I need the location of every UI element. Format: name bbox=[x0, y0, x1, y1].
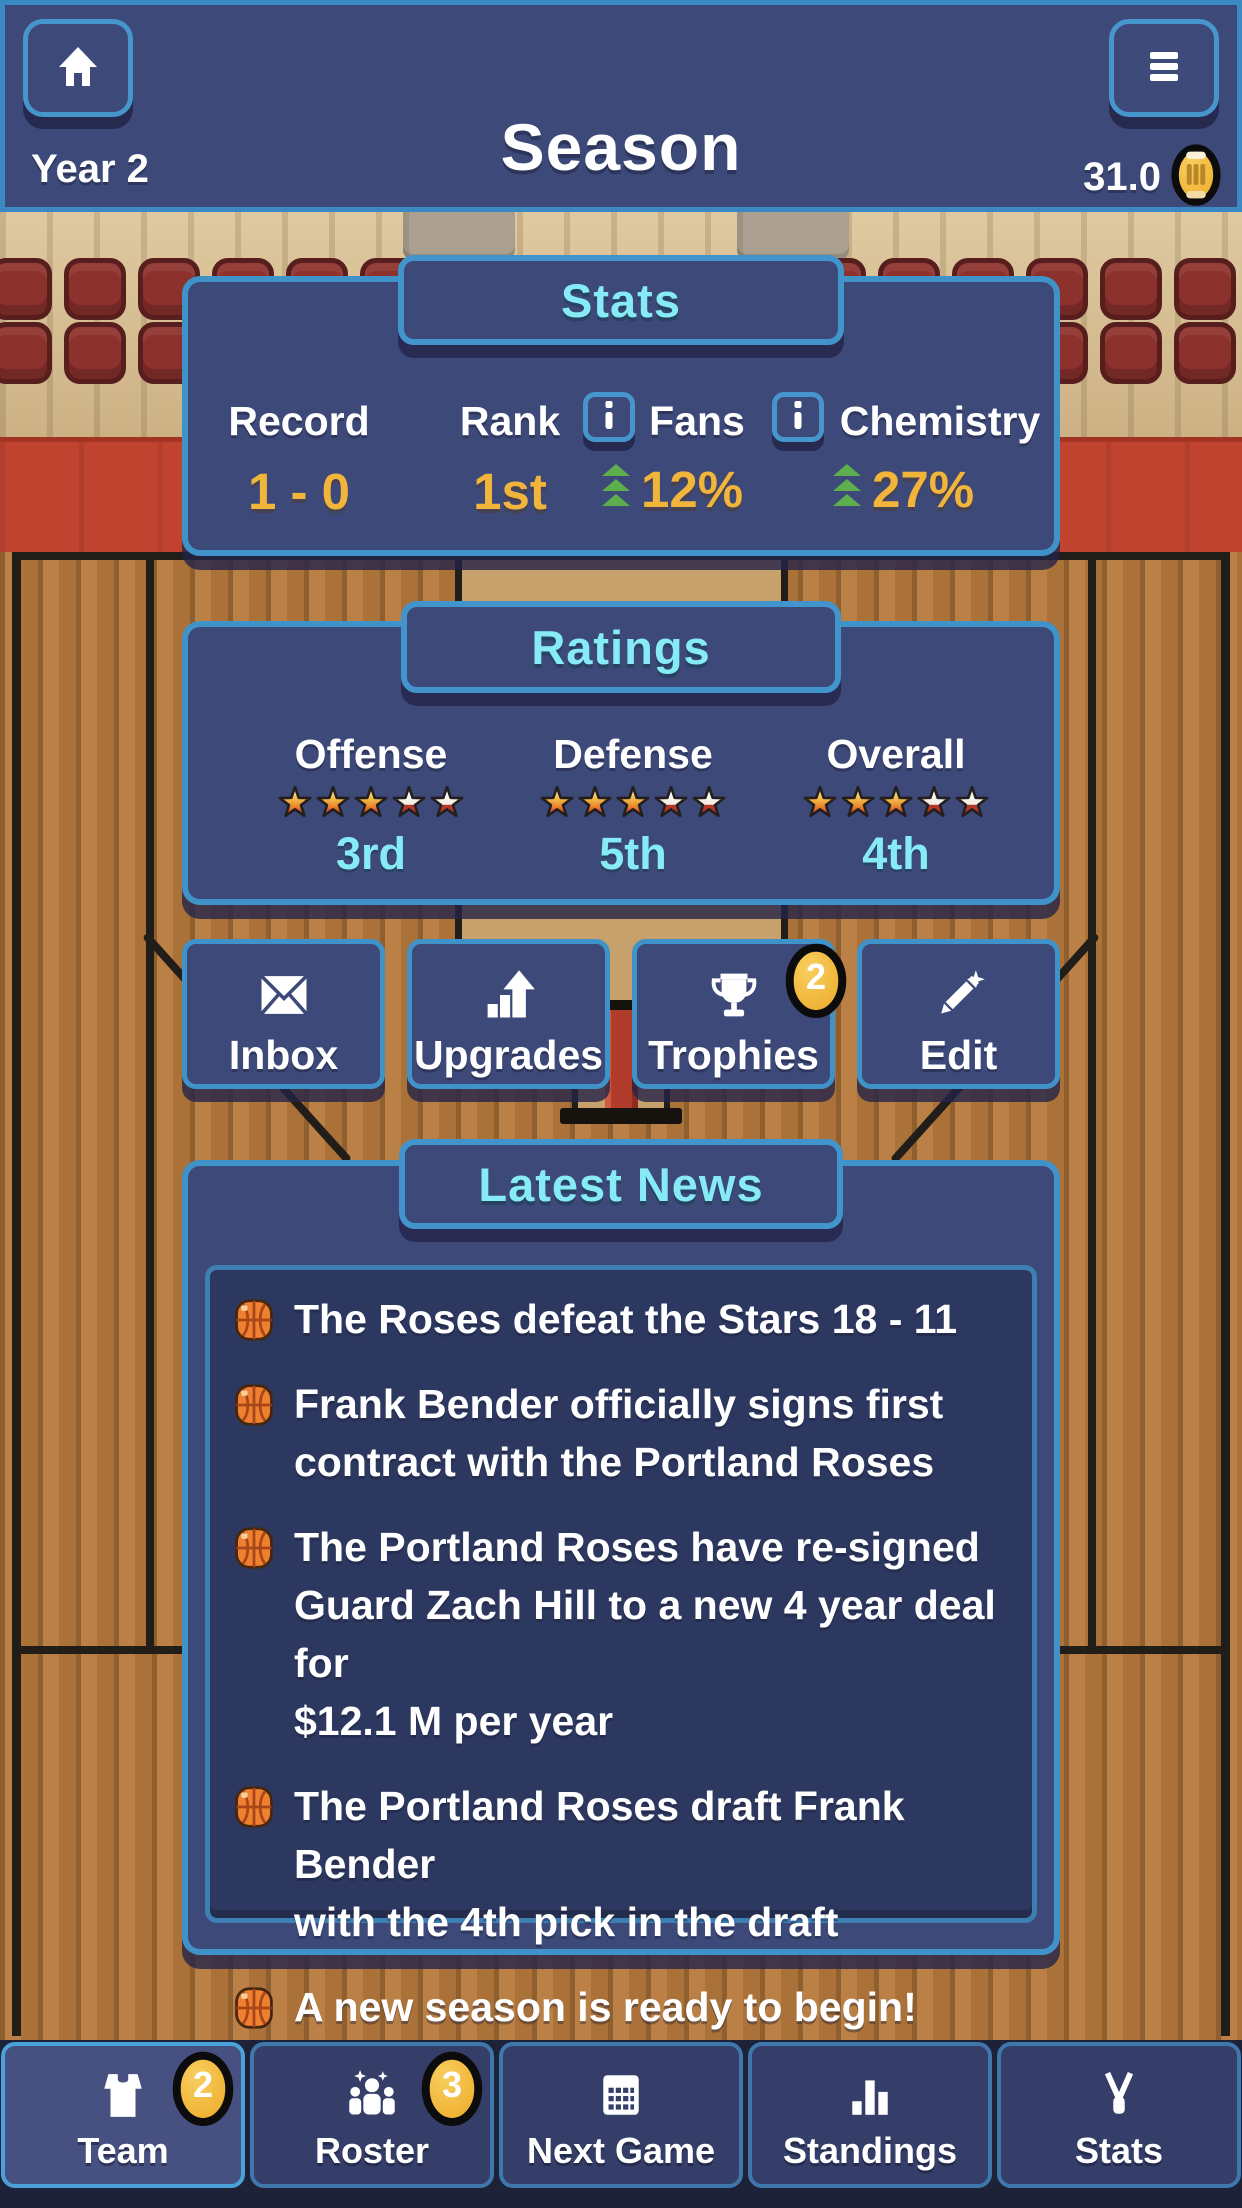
roster-badge: 3 bbox=[420, 2050, 484, 2126]
season-screen: Year 2 Season 31.0 Record Rank bbox=[0, 0, 1242, 2208]
whistle-icon bbox=[1094, 2062, 1144, 2128]
news-panel-header: Latest News bbox=[399, 1139, 843, 1229]
entrance-mat bbox=[403, 205, 515, 260]
nav-label-roster: Roster bbox=[315, 2130, 429, 2172]
seat bbox=[1100, 258, 1162, 320]
team-badge: 2 bbox=[171, 2050, 235, 2126]
trend-up-icon bbox=[601, 464, 631, 515]
menu-icon bbox=[1142, 44, 1186, 93]
nav-label-next-game: Next Game bbox=[527, 2130, 715, 2172]
nav-tab-standings[interactable]: Standings bbox=[748, 2042, 992, 2188]
trophies-badge: 2 bbox=[784, 942, 848, 1018]
rating-label: Overall bbox=[826, 731, 965, 778]
entrance-mat bbox=[737, 205, 849, 260]
news-text: The Portland Roses have re-signed Guard … bbox=[294, 1518, 1002, 1750]
nav-label-standings: Standings bbox=[783, 2130, 957, 2172]
people-icon bbox=[346, 2062, 398, 2128]
news-text: A new season is ready to begin! bbox=[294, 1978, 917, 2036]
basketball-icon bbox=[232, 1986, 276, 2036]
stat-label-fans: Fans bbox=[649, 398, 745, 445]
scoreboard-icon bbox=[596, 2062, 646, 2128]
seat bbox=[0, 258, 52, 320]
news-text: The Portland Roses draft Frank Bender wi… bbox=[294, 1777, 1002, 1951]
rating-rank: 4th bbox=[862, 828, 930, 880]
action-button-row: Inbox Upgrades 2 Trophies Edit bbox=[182, 939, 1060, 1089]
star-rating bbox=[802, 786, 990, 822]
star-rating bbox=[539, 786, 727, 822]
stats-panel-header: Stats bbox=[398, 255, 844, 345]
nav-tab-next-game[interactable]: Next Game bbox=[499, 2042, 743, 2188]
news-item: Frank Bender officially signs first cont… bbox=[232, 1375, 1002, 1491]
basketball-icon bbox=[232, 1785, 276, 1951]
stats-panel-title: Stats bbox=[561, 273, 681, 328]
news-panel: The Roses defeat the Stars 18 - 11 Frank… bbox=[182, 1160, 1060, 1955]
envelope-icon bbox=[255, 964, 313, 1026]
edit-label: Edit bbox=[920, 1032, 997, 1079]
trend-up-icon bbox=[832, 464, 862, 515]
news-item: The Portland Roses draft Frank Bender wi… bbox=[232, 1777, 1002, 1951]
nav-label-stats: Stats bbox=[1075, 2130, 1163, 2172]
upgrades-label: Upgrades bbox=[414, 1032, 603, 1079]
seat bbox=[1174, 258, 1236, 320]
star-rating bbox=[277, 786, 465, 822]
chemistry-value: 27% bbox=[872, 460, 974, 519]
court-sideline bbox=[12, 558, 21, 2036]
top-bar: Year 2 Season 31.0 bbox=[0, 0, 1242, 212]
rating-label: Offense bbox=[295, 731, 448, 778]
trophies-badge-count: 2 bbox=[784, 956, 848, 998]
rank-value: 1st bbox=[473, 462, 547, 521]
trophies-label: Trophies bbox=[648, 1032, 819, 1079]
rank-info-button[interactable] bbox=[583, 392, 635, 442]
court-lane-line bbox=[146, 558, 154, 1652]
seat bbox=[1174, 322, 1236, 384]
info-icon bbox=[596, 400, 622, 435]
news-text: The Roses defeat the Stars 18 - 11 bbox=[294, 1290, 957, 1348]
nav-label-team: Team bbox=[77, 2130, 168, 2172]
bottom-navigation: 2 Team 3 Roster bbox=[0, 2040, 1242, 2208]
fans-value-group: 12% bbox=[601, 460, 743, 519]
seat bbox=[1100, 322, 1162, 384]
home-icon bbox=[55, 43, 101, 94]
stat-label-rank: Rank bbox=[460, 398, 560, 445]
edit-button[interactable]: Edit bbox=[857, 939, 1060, 1089]
upgrades-button[interactable]: Upgrades bbox=[407, 939, 610, 1089]
ratings-panel-header: Ratings bbox=[401, 601, 841, 693]
trophies-button[interactable]: 2 Trophies bbox=[632, 939, 835, 1089]
pencil-icon bbox=[932, 964, 986, 1026]
currency-display: 31.0 bbox=[1083, 143, 1223, 212]
rating-label: Defense bbox=[553, 731, 713, 778]
info-icon bbox=[785, 400, 811, 435]
stat-label-record: Record bbox=[228, 398, 369, 445]
coin-amount: 31.0 bbox=[1083, 155, 1161, 200]
rating-rank: 3rd bbox=[336, 828, 406, 880]
news-list-panel: The Roses defeat the Stars 18 - 11 Frank… bbox=[205, 1265, 1037, 1923]
basketball-icon bbox=[232, 1526, 276, 1750]
roster-badge-count: 3 bbox=[420, 2064, 484, 2106]
news-item: The Roses defeat the Stars 18 - 11 bbox=[232, 1290, 1002, 1348]
record-value: 1 - 0 bbox=[248, 462, 350, 521]
inbox-button[interactable]: Inbox bbox=[182, 939, 385, 1089]
news-item: The Portland Roses have re-signed Guard … bbox=[232, 1518, 1002, 1750]
nav-tab-stats[interactable]: Stats bbox=[997, 2042, 1241, 2188]
inbox-label: Inbox bbox=[229, 1032, 338, 1079]
menu-button[interactable] bbox=[1109, 19, 1219, 117]
chart-up-icon bbox=[481, 964, 537, 1026]
seat bbox=[0, 322, 52, 384]
jersey-icon bbox=[98, 2062, 148, 2128]
court-sideline bbox=[1221, 558, 1230, 2036]
news-item: A new season is ready to begin! bbox=[232, 1978, 1002, 2036]
news-panel-title: Latest News bbox=[478, 1157, 763, 1212]
trophy-icon bbox=[707, 964, 761, 1026]
chemistry-value-group: 27% bbox=[832, 460, 974, 519]
page-title: Season bbox=[5, 109, 1237, 185]
ratings-panel-title: Ratings bbox=[531, 620, 710, 675]
basketball-icon bbox=[232, 1298, 276, 1348]
news-list: The Roses defeat the Stars 18 - 11 Frank… bbox=[232, 1290, 1002, 2036]
nav-tab-roster[interactable]: 3 Roster bbox=[250, 2042, 494, 2188]
fans-value: 12% bbox=[641, 460, 743, 519]
stat-label-chemistry: Chemistry bbox=[840, 398, 1041, 445]
nav-tab-team[interactable]: 2 Team bbox=[1, 2042, 245, 2188]
court-lane-line bbox=[1088, 558, 1096, 1652]
coin-icon bbox=[1169, 143, 1223, 212]
seat bbox=[64, 322, 126, 384]
basketball-icon bbox=[232, 1383, 276, 1491]
team-badge-count: 2 bbox=[171, 2064, 235, 2106]
hoop-base bbox=[560, 1108, 682, 1124]
seat bbox=[64, 258, 126, 320]
home-button[interactable] bbox=[23, 19, 133, 117]
fans-info-button[interactable] bbox=[772, 392, 824, 442]
news-text: Frank Bender officially signs first cont… bbox=[294, 1375, 943, 1491]
bar-chart-icon bbox=[845, 2062, 895, 2128]
rating-rank: 5th bbox=[599, 828, 667, 880]
